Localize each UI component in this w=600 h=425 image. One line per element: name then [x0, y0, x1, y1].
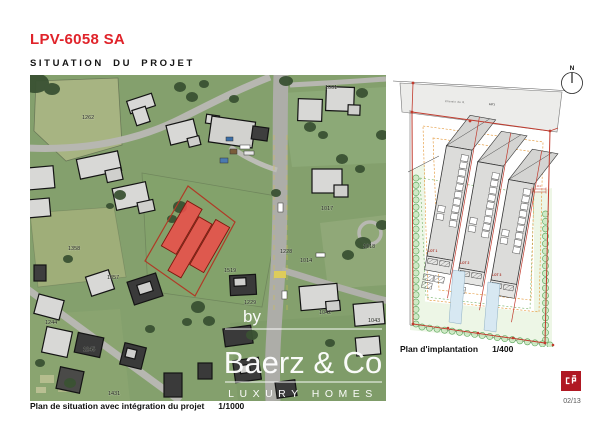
parcel-label: 1228: [280, 249, 292, 255]
lot-label: LOT 2: [460, 261, 470, 265]
parcel-label: 1262: [82, 115, 94, 121]
page-number: 02/13: [552, 398, 592, 405]
parcel-label: 1229: [244, 300, 256, 306]
plan-scale: 1/400: [492, 344, 513, 354]
parcel-label: 1001: [325, 85, 337, 91]
parcel-label: 1014: [300, 258, 312, 264]
company-logo: [561, 371, 581, 391]
page-subtitle: SITUATION DU PROJET: [30, 58, 195, 69]
parcel-label: 1244: [45, 320, 57, 326]
parcel-label: 1042: [319, 310, 331, 316]
situation-map-svg: 1262100110171018122810141519135813571244…: [30, 75, 386, 401]
map-caption: Plan de situation avec intégration du pr…: [30, 401, 244, 411]
lot-label: LOT 3: [492, 273, 502, 277]
watermark-tagline: LUXURY HOMES: [228, 388, 378, 400]
parcel-label: 1358: [68, 246, 80, 252]
north-label: N: [570, 65, 575, 72]
parcel-label: 1017: [321, 206, 333, 212]
site-plan: Chemin de R. 1071: [393, 62, 598, 347]
plan-caption-text: Plan d'implantation: [400, 344, 478, 354]
parcel-label: 1018: [363, 244, 375, 250]
page-title: LPV-6058 SA: [30, 31, 125, 48]
watermark-prefix: by: [243, 307, 261, 326]
site-plan-svg: Chemin de R. 1071: [393, 62, 598, 347]
dimension-label: 40.1: [537, 185, 542, 188]
situation-map: 1262100110171018122810141519135813571244…: [30, 75, 386, 401]
parcel-label: 1043: [368, 318, 380, 324]
parcel-label: 1357: [107, 275, 119, 281]
north-arrow: N: [562, 65, 583, 94]
map-caption-text: Plan de situation avec intégration du pr…: [30, 401, 204, 411]
road-ref: 1071: [489, 102, 496, 106]
parcel-label: 1519: [224, 268, 236, 274]
document-page: LPV-6058 SA SITUATION DU PROJET: [0, 0, 600, 425]
logo-monogram-icon: [561, 371, 581, 391]
map-scale: 1/1000: [218, 401, 244, 411]
parcel-label: 1245: [83, 347, 95, 353]
plan-caption: Plan d'implantation1/400: [400, 344, 513, 354]
parcel-label: 1431: [108, 391, 120, 397]
lot-label: LOT 1: [428, 249, 438, 253]
watermark-brand: Baerz & Co: [224, 345, 383, 380]
